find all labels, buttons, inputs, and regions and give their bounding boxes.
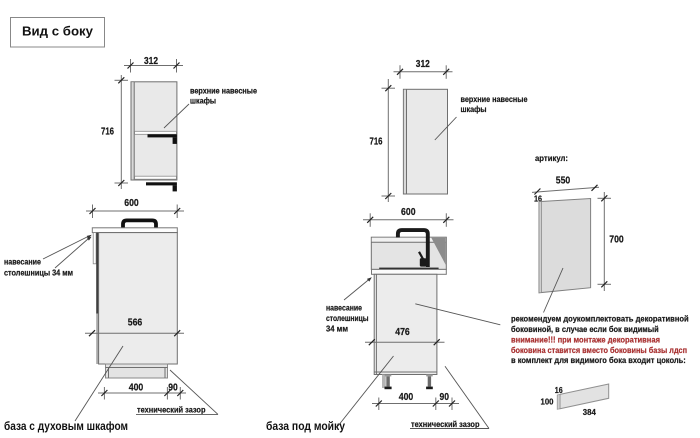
svg-text:внимание!!! при монтаже декора: внимание!!! при монтаже декоративная: [511, 334, 660, 344]
svg-text:Вид с боку: Вид с боку: [22, 25, 93, 39]
svg-text:716: 716: [101, 127, 114, 138]
svg-text:навесание: навесание: [326, 303, 362, 313]
svg-text:база с духовым шкафом: база с духовым шкафом: [4, 419, 128, 433]
svg-text:600: 600: [401, 207, 416, 218]
svg-text:навесание: навесание: [4, 257, 41, 267]
svg-text:верхние навесные: верхние навесные: [190, 86, 257, 96]
svg-text:технический зазор: технический зазор: [411, 419, 480, 429]
svg-text:база под мойку: база под мойку: [266, 419, 345, 433]
svg-text:столешницы 34 мм: столешницы 34 мм: [4, 268, 73, 278]
svg-text:600: 600: [124, 198, 139, 209]
svg-text:476: 476: [395, 327, 410, 338]
svg-text:90: 90: [168, 382, 178, 393]
svg-text:550: 550: [556, 175, 571, 186]
svg-text:312: 312: [416, 59, 430, 70]
svg-text:16: 16: [555, 385, 563, 395]
svg-text:шкафы: шкафы: [190, 96, 216, 106]
svg-text:боковина ставится вместо боков: боковина ставится вместо боковины базы л…: [511, 345, 687, 355]
svg-text:90: 90: [440, 392, 450, 403]
svg-text:400: 400: [399, 392, 414, 403]
svg-text:артикул:: артикул:: [535, 153, 568, 163]
svg-text:шкафы: шкафы: [461, 104, 487, 114]
svg-text:верхние навесные: верхние навесные: [461, 94, 528, 104]
svg-text:столешницы: столешницы: [326, 313, 369, 323]
svg-text:716: 716: [370, 137, 383, 148]
svg-text:566: 566: [128, 318, 143, 329]
svg-text:рекомендуем доукомплектовать д: рекомендуем доукомплектовать декоративно…: [511, 313, 689, 323]
svg-text:384: 384: [583, 407, 596, 417]
svg-text:100: 100: [541, 397, 554, 407]
svg-text:400: 400: [129, 382, 144, 393]
svg-text:в комплект для видимого бока в: в комплект для видимого бока входит цоко…: [511, 355, 686, 365]
svg-text:боковиной, в случае если бок в: боковиной, в случае если бок видимый: [511, 324, 659, 334]
svg-text:технический зазор: технический зазор: [137, 404, 206, 414]
svg-text:34 мм: 34 мм: [326, 324, 348, 334]
svg-text:700: 700: [609, 234, 624, 245]
